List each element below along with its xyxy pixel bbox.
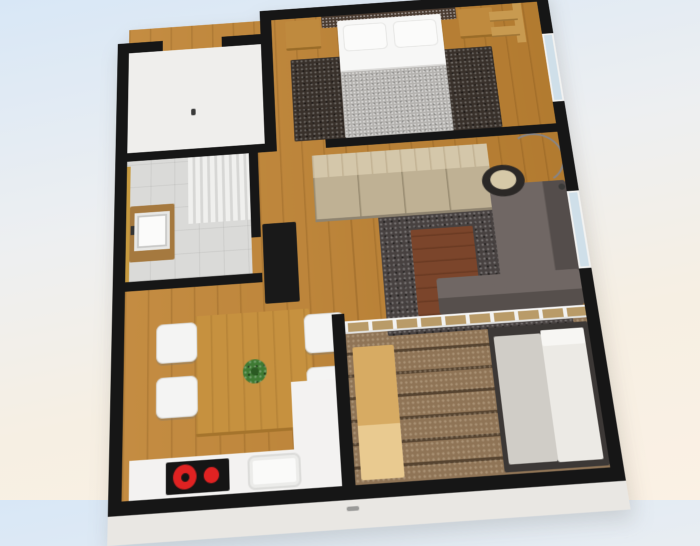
daybed-pillow — [540, 327, 586, 346]
entry-hall-floor — [127, 44, 264, 153]
nightstand-left — [285, 19, 321, 51]
scene-background — [0, 0, 700, 500]
exterior-door-handle — [347, 506, 360, 511]
screenshot-root: { "meta": { "description": "3D rendered … — [0, 0, 700, 500]
bed-duvet — [340, 64, 453, 138]
wall-shelf-upper — [489, 10, 518, 22]
wall-shelf-lower — [491, 25, 520, 37]
vanity-tap — [131, 226, 135, 235]
floor-plan-3d — [108, 0, 626, 517]
shower-curtain — [188, 153, 251, 224]
pillow-right — [393, 19, 439, 48]
dining-chair-1 — [156, 322, 197, 364]
pillow-left — [342, 22, 388, 51]
vanity-basin — [134, 211, 170, 251]
dining-chair-2 — [156, 375, 198, 419]
entry-floor-handle — [191, 109, 196, 116]
tv-cabinet — [262, 222, 300, 304]
kitchen-sink — [247, 452, 302, 490]
